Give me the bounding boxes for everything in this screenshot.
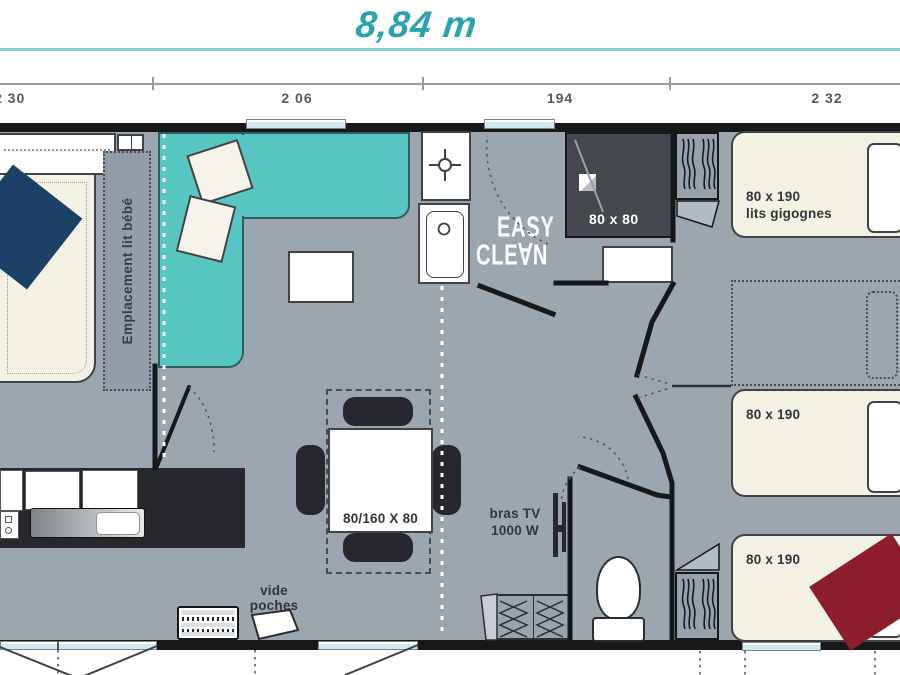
sofa-back (242, 132, 410, 219)
window-bottom-3 (742, 642, 821, 651)
total-length-value: 8,84 m (354, 4, 480, 46)
dim-segment-4: 2 32 (811, 90, 842, 106)
shower-drain-icon (579, 174, 596, 191)
tv-label: bras TV 1000 W (480, 505, 550, 539)
bed2-label: 80 x 190 (746, 407, 800, 422)
dimension-line (0, 83, 900, 85)
sink-basin (96, 512, 140, 535)
coffee-table (288, 251, 354, 303)
single-bed-2: 80 x 190 (731, 389, 900, 497)
nightstand (117, 134, 144, 151)
bunk-bed-size: 80 x 190 (746, 188, 832, 205)
bunk-bed-type: lits gigognes (746, 205, 832, 222)
trundle-pillow-outline (866, 291, 898, 379)
dining-table-size-label: 80/160 X 80 (330, 511, 431, 526)
wardrobe-top (675, 132, 719, 200)
pockets-label: vide poches (244, 583, 304, 613)
storage-unit (495, 594, 570, 640)
toilet-tank (592, 617, 645, 642)
window-bottom-1 (0, 641, 157, 650)
shower-size-label: 80 x 80 (589, 211, 639, 227)
floor-plan-page: 8,84 m 2 30 2 06 194 2 32 Emplacement li… (0, 0, 900, 675)
dimension-tick (669, 77, 671, 90)
kitchen-cabinet-3 (82, 470, 138, 510)
baby-bed-zone-label: Emplacement lit bébé (120, 198, 135, 345)
trundle-bed-outline (731, 280, 900, 386)
total-length-title: 8,84 m (0, 4, 834, 46)
toilet-bowl (596, 556, 641, 620)
kitchen-cabinet-1 (0, 470, 23, 511)
dining-table: 80/160 X 80 (328, 428, 433, 533)
pockets-line1: vide (244, 583, 304, 598)
dim-segment-3: 194 (547, 90, 573, 106)
dim-segment-1: 2 30 (0, 90, 25, 106)
window-top-1 (246, 119, 346, 129)
dim-segment-2: 2 06 (281, 90, 312, 106)
shower: 80 x 80 (565, 132, 673, 238)
tv-label-line1: bras TV (480, 505, 550, 522)
wardrobe-bottom (675, 572, 719, 640)
bed3-label: 80 x 190 (746, 552, 800, 567)
kitchen-cabinet-2 (25, 471, 80, 510)
tv-label-line2: 1000 W (480, 522, 550, 539)
slatted-bench (177, 606, 239, 640)
dining-chair-right (432, 445, 461, 515)
dining-chair-top (343, 397, 413, 426)
bunk-bed-pillow (867, 143, 900, 233)
window-bottom-2 (318, 641, 418, 650)
bed2-pillow (867, 401, 900, 493)
baby-bed-zone-label-wrap: Emplacement lit bébé (114, 151, 140, 391)
bunk-bed-label: 80 x 190 lits gigognes (746, 188, 832, 222)
teal-rule (0, 48, 900, 51)
dimension-tick (422, 77, 424, 90)
hob-small-unit (0, 511, 19, 539)
hob-unit (421, 131, 471, 201)
washbasin-unit (418, 203, 470, 284)
bunk-bed: 80 x 190 lits gigognes (731, 131, 900, 238)
pockets-line2: poches (244, 598, 304, 613)
dimension-tick (152, 77, 154, 90)
dining-chair-bottom (343, 533, 413, 562)
window-top-2 (484, 119, 555, 129)
kitchen-sink (30, 508, 145, 538)
dining-chair-left (296, 445, 325, 515)
bathroom-vanity (602, 246, 673, 283)
easy-clean-line2: CLE∀N (476, 238, 548, 273)
